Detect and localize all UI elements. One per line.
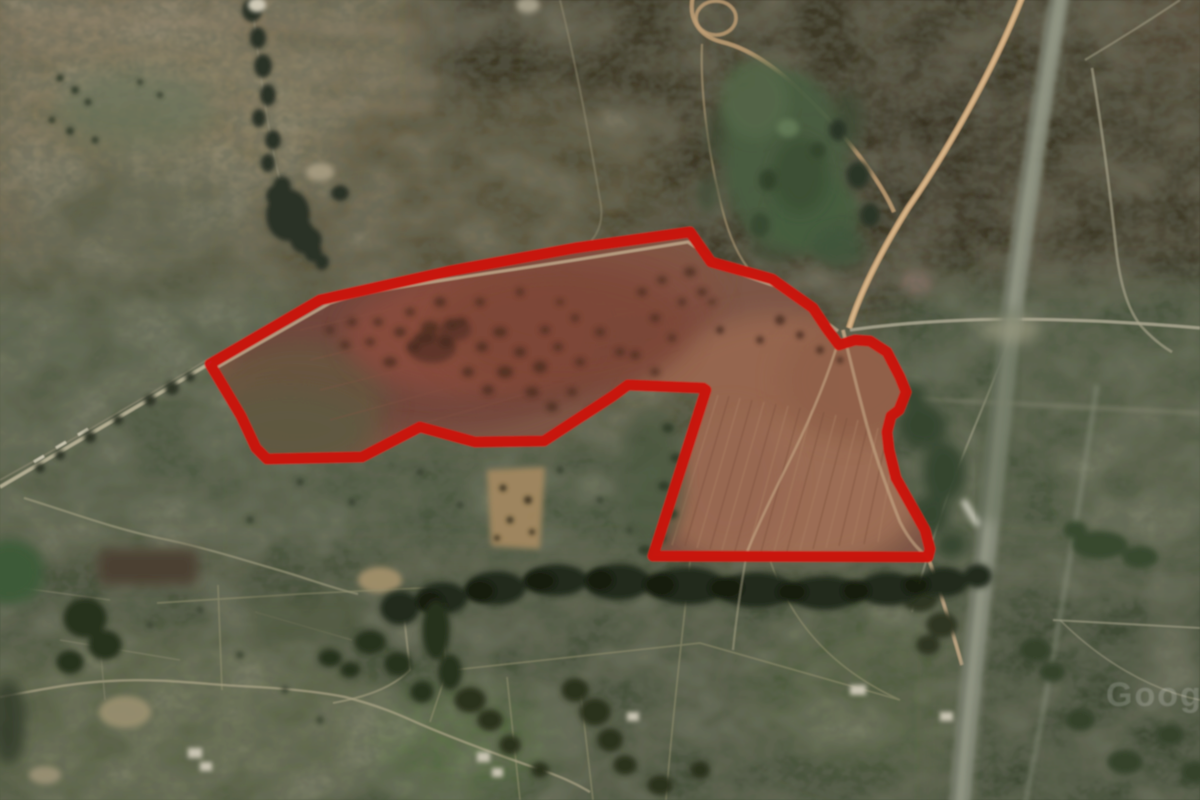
svg-text:Google: Google xyxy=(1106,676,1200,714)
